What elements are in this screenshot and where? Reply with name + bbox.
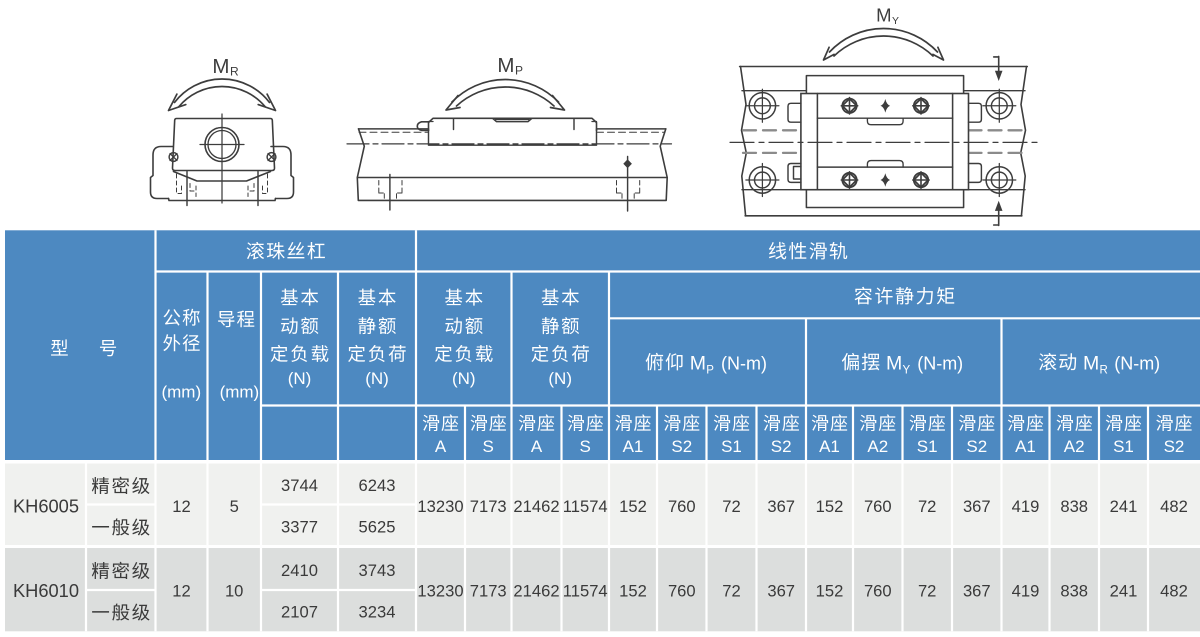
svg-text:S1: S1 [917,437,938,456]
svg-text:367: 367 [767,497,795,516]
svg-text:KH6010: KH6010 [13,580,79,601]
svg-text:R: R [230,64,239,78]
svg-text:M: M [876,5,891,26]
svg-text:A1: A1 [1015,437,1036,456]
svg-text:KH6005: KH6005 [13,496,79,517]
svg-text:10: 10 [225,582,243,601]
svg-text:152: 152 [619,582,647,601]
svg-text:367: 367 [963,497,991,516]
svg-text:367: 367 [963,582,991,601]
svg-text:72: 72 [918,582,936,601]
svg-text:241: 241 [1110,497,1138,516]
svg-text:2107: 2107 [281,603,318,622]
svg-text:M: M [1083,353,1099,375]
svg-text:21462: 21462 [513,497,559,516]
svg-text:(N-m): (N-m) [1114,354,1160,374]
svg-text:(mm): (mm) [161,383,201,402]
svg-text:M: M [886,353,902,375]
svg-text:12: 12 [172,582,190,601]
svg-text:5625: 5625 [359,518,396,537]
svg-text:A2: A2 [1064,437,1085,456]
svg-text:7173: 7173 [470,582,507,601]
svg-text:241: 241 [1110,582,1138,601]
svg-text:419: 419 [1012,497,1040,516]
svg-text:Y: Y [903,365,911,377]
svg-text:5: 5 [230,497,239,516]
svg-text:S: S [483,437,494,456]
svg-text:12: 12 [172,497,190,516]
svg-text:419: 419 [1012,582,1040,601]
svg-text:482: 482 [1160,497,1188,516]
svg-text:S2: S2 [671,437,692,456]
svg-text:3743: 3743 [359,561,396,580]
svg-text:R: R [1100,365,1108,377]
svg-text:13230: 13230 [417,582,463,601]
svg-text:S2: S2 [966,437,987,456]
svg-text:(N-m): (N-m) [721,354,767,374]
svg-text:7173: 7173 [470,497,507,516]
svg-text:152: 152 [619,497,647,516]
svg-text:M: M [212,55,229,78]
svg-text:152: 152 [816,497,844,516]
svg-text:A1: A1 [819,437,840,456]
svg-text:(N): (N) [365,369,389,388]
svg-text:(mm): (mm) [220,383,260,402]
svg-text:S1: S1 [1113,437,1134,456]
svg-text:(N): (N) [452,369,476,388]
svg-text:M: M [497,54,514,77]
svg-text:11574: 11574 [563,497,608,516]
svg-text:838: 838 [1060,582,1088,601]
svg-text:13230: 13230 [417,497,463,516]
svg-text:11574: 11574 [563,582,608,601]
svg-text:482: 482 [1160,582,1188,601]
svg-text:(N): (N) [288,369,312,388]
svg-text:760: 760 [668,497,696,516]
svg-text:72: 72 [918,497,936,516]
svg-text:M: M [690,353,706,375]
svg-text:A2: A2 [867,437,888,456]
svg-text:Y: Y [892,15,899,27]
svg-text:2410: 2410 [281,561,318,580]
svg-text:21462: 21462 [513,582,559,601]
svg-text:(N-m): (N-m) [917,354,963,374]
svg-text:152: 152 [816,582,844,601]
svg-text:6243: 6243 [359,476,396,495]
svg-text:S2: S2 [771,437,792,456]
svg-text:760: 760 [668,582,696,601]
svg-text:3744: 3744 [281,476,318,495]
svg-text:3234: 3234 [359,603,396,622]
svg-text:S: S [580,437,591,456]
svg-text:838: 838 [1060,497,1088,516]
svg-text:(N): (N) [548,369,572,388]
svg-text:760: 760 [864,497,892,516]
svg-text:S1: S1 [721,437,742,456]
svg-text:P: P [706,365,714,377]
svg-text:72: 72 [722,497,740,516]
svg-text:P: P [515,63,523,77]
svg-text:367: 367 [767,582,795,601]
svg-text:A: A [435,437,447,456]
svg-text:72: 72 [722,582,740,601]
svg-text:760: 760 [864,582,892,601]
svg-text:A1: A1 [623,437,644,456]
svg-text:A: A [531,437,543,456]
svg-text:S2: S2 [1164,437,1185,456]
svg-text:3377: 3377 [281,518,318,537]
